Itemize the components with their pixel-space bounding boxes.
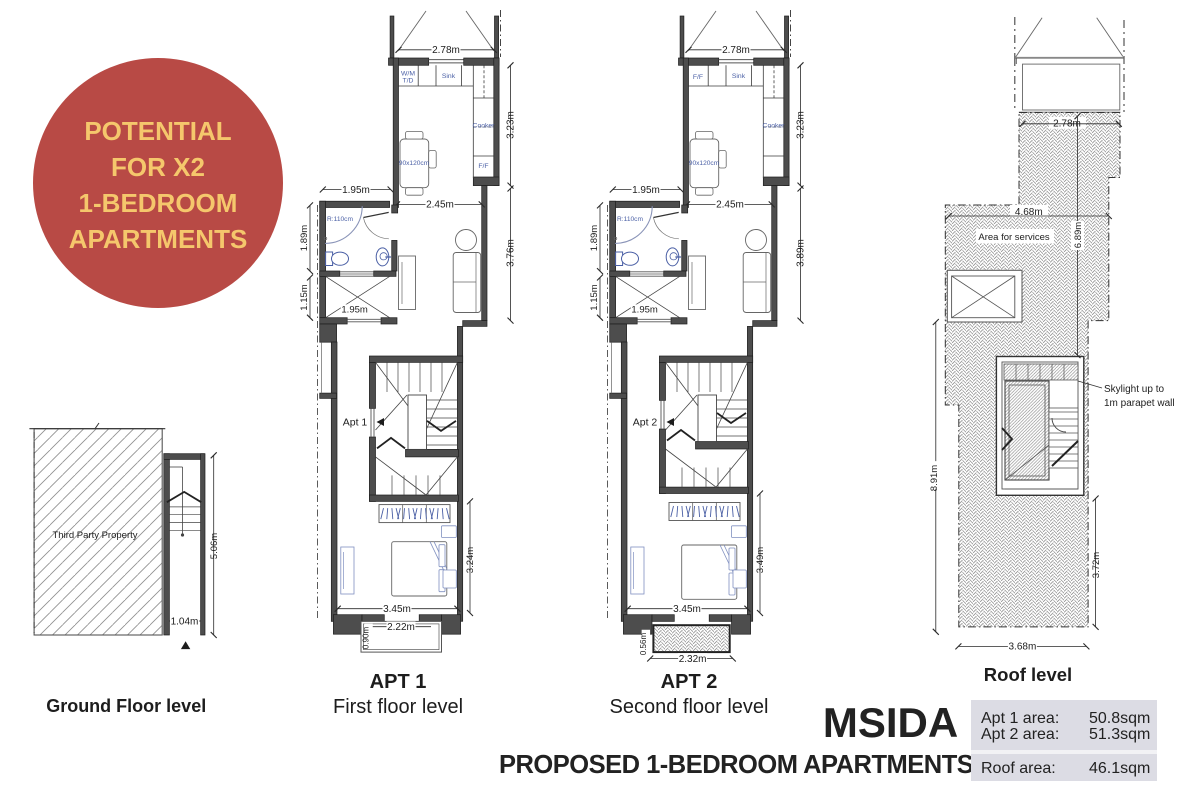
- svg-text:3.23m: 3.23m: [506, 111, 517, 139]
- svg-text:R:110cm: R:110cm: [327, 216, 353, 223]
- svg-text:3.89m: 3.89m: [796, 239, 807, 267]
- svg-text:2.45m: 2.45m: [716, 200, 744, 211]
- svg-text:6.89m: 6.89m: [1073, 222, 1084, 248]
- svg-text:5.06m: 5.06m: [209, 533, 220, 559]
- svg-text:Ground Floor level: Ground Floor level: [46, 696, 206, 716]
- svg-text:F/F: F/F: [478, 163, 488, 170]
- svg-text:3.23m: 3.23m: [796, 111, 807, 139]
- svg-text:3.72m: 3.72m: [1091, 552, 1102, 578]
- svg-text:Sink: Sink: [442, 73, 456, 80]
- svg-text:90x120cm: 90x120cm: [689, 160, 720, 167]
- svg-text:Skylight up to: Skylight up to: [1104, 384, 1164, 395]
- svg-text:90x120cm: 90x120cm: [399, 160, 430, 167]
- svg-text:1.04m: 1.04m: [171, 616, 199, 627]
- svg-text:Cooker: Cooker: [763, 123, 786, 130]
- svg-text:0.90m: 0.90m: [362, 627, 371, 650]
- svg-text:1.95m: 1.95m: [342, 185, 370, 196]
- svg-text:1.15m: 1.15m: [589, 284, 600, 310]
- svg-text:2.78m: 2.78m: [1053, 119, 1081, 130]
- svg-text:2.45m: 2.45m: [426, 200, 454, 211]
- svg-text:F/F: F/F: [693, 74, 703, 81]
- svg-text:1.15m: 1.15m: [299, 284, 310, 310]
- svg-text:3.45m: 3.45m: [383, 604, 411, 615]
- svg-text:3.76m: 3.76m: [506, 239, 517, 267]
- svg-text:3.24m: 3.24m: [465, 547, 476, 573]
- svg-text:Roof level: Roof level: [984, 664, 1072, 685]
- svg-text:2.22m: 2.22m: [387, 622, 415, 633]
- svg-text:Cooker: Cooker: [473, 123, 496, 130]
- svg-text:1.95m: 1.95m: [341, 305, 367, 316]
- svg-text:0.56m: 0.56m: [639, 633, 648, 656]
- svg-text:3.45m: 3.45m: [673, 604, 701, 615]
- svg-text:Third Party Property: Third Party Property: [53, 530, 138, 541]
- svg-text:1.89m: 1.89m: [299, 225, 310, 251]
- svg-text:1.95m: 1.95m: [632, 185, 660, 196]
- svg-text:2.32m: 2.32m: [679, 654, 707, 665]
- svg-text:Apt 2: Apt 2: [633, 417, 658, 429]
- svg-text:1.95m: 1.95m: [631, 305, 657, 316]
- svg-text:Area for services: Area for services: [978, 232, 1050, 243]
- svg-text:3.68m: 3.68m: [1009, 642, 1037, 653]
- svg-text:Apt 1: Apt 1: [343, 417, 368, 429]
- svg-text:R:110cm: R:110cm: [617, 216, 643, 223]
- svg-text:8.91m: 8.91m: [929, 465, 940, 491]
- svg-text:1.89m: 1.89m: [589, 225, 600, 251]
- svg-text:2.78m: 2.78m: [722, 45, 750, 56]
- svg-text:3.49m: 3.49m: [755, 547, 766, 573]
- svg-text:Sink: Sink: [732, 73, 746, 80]
- svg-text:2.78m: 2.78m: [432, 45, 460, 56]
- svg-text:4.68m: 4.68m: [1015, 207, 1043, 218]
- svg-text:W/M: W/M: [401, 71, 415, 78]
- svg-text:T/D: T/D: [403, 78, 414, 85]
- svg-text:1m parapet wall: 1m parapet wall: [1104, 398, 1175, 409]
